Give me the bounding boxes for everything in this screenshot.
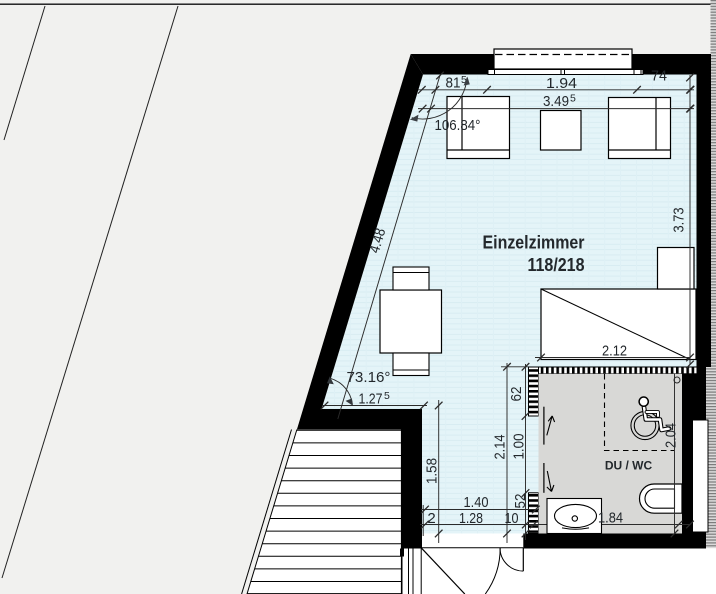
svg-text:1.84: 1.84	[598, 510, 623, 527]
svg-text:2: 2	[427, 510, 435, 527]
svg-text:52: 52	[512, 494, 529, 509]
svg-text:1.40: 1.40	[464, 494, 489, 511]
svg-text:118/218: 118/218	[528, 255, 585, 275]
svg-text:74: 74	[651, 68, 667, 85]
svg-text:1.00: 1.00	[511, 434, 528, 460]
svg-text:3.49: 3.49	[543, 93, 569, 110]
svg-text:5: 5	[384, 390, 390, 402]
svg-text:62: 62	[508, 387, 525, 402]
svg-text:2.04: 2.04	[663, 423, 680, 448]
svg-text:1.27: 1.27	[359, 391, 383, 408]
svg-text:3.73: 3.73	[671, 208, 688, 233]
svg-text:2.14: 2.14	[492, 435, 509, 460]
svg-text:1.28: 1.28	[459, 510, 483, 527]
svg-text:106.84°: 106.84°	[435, 117, 481, 134]
svg-text:73.16°: 73.16°	[347, 369, 391, 386]
svg-text:Einzelzimmer: Einzelzimmer	[483, 233, 585, 253]
svg-text:81: 81	[446, 75, 461, 92]
svg-text:5: 5	[570, 93, 576, 105]
svg-text:1.94: 1.94	[546, 75, 577, 92]
svg-text:DU / WC: DU / WC	[605, 459, 653, 473]
svg-text:1.58: 1.58	[424, 458, 441, 484]
svg-text:10: 10	[505, 510, 519, 527]
svg-text:2.12: 2.12	[602, 343, 627, 360]
